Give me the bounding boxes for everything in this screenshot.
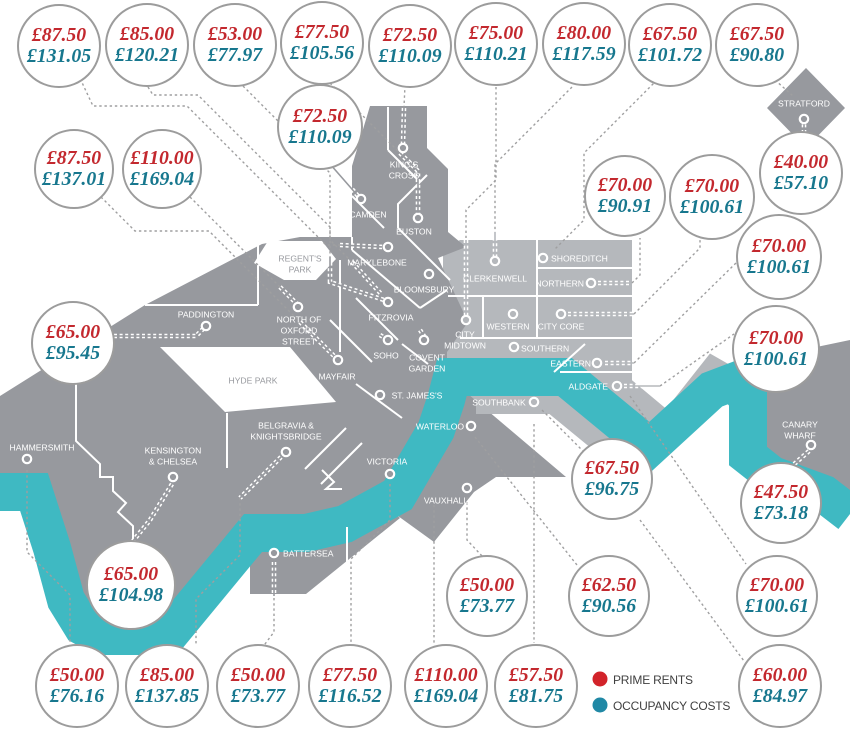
svg-text:£53.00: £53.00: [207, 23, 263, 45]
svg-text:KNIGHTSBRIDGE: KNIGHTSBRIDGE: [250, 432, 321, 442]
svg-text:STRATFORD: STRATFORD: [778, 99, 830, 109]
svg-text:£47.50: £47.50: [753, 481, 809, 503]
svg-text:WESTERN: WESTERN: [487, 322, 530, 332]
svg-text:BLOOMSBURY: BLOOMSBURY: [394, 285, 455, 295]
svg-text:SOHO: SOHO: [373, 351, 399, 361]
svg-text:MAYFAIR: MAYFAIR: [318, 372, 355, 382]
svg-text:CROSS: CROSS: [389, 171, 420, 181]
svg-text:£87.50: £87.50: [46, 147, 102, 169]
svg-text:£100.61: £100.61: [744, 595, 809, 617]
svg-text:£110.09: £110.09: [377, 45, 441, 67]
svg-text:£169.04: £169.04: [129, 168, 194, 190]
svg-text:WATERLOO: WATERLOO: [416, 422, 465, 432]
svg-text:£116.52: £116.52: [317, 685, 381, 707]
svg-text:PRIME RENTS: PRIME RENTS: [613, 673, 693, 687]
svg-text:CITY CORE: CITY CORE: [538, 322, 585, 332]
svg-text:£73.77: £73.77: [230, 685, 287, 707]
svg-text:£85.00: £85.00: [119, 23, 175, 45]
svg-text:£110.00: £110.00: [129, 147, 193, 169]
svg-text:£81.75: £81.75: [508, 685, 564, 707]
svg-text:£110.00: £110.00: [413, 664, 477, 686]
svg-text:CITY: CITY: [455, 330, 475, 340]
svg-text:£60.00: £60.00: [752, 664, 808, 686]
svg-text:PARK: PARK: [289, 265, 312, 275]
svg-text:COVENT: COVENT: [409, 353, 446, 363]
svg-text:£75.00: £75.00: [468, 22, 524, 44]
svg-text:£117.59: £117.59: [551, 43, 615, 65]
svg-text:BELGRAVIA &: BELGRAVIA &: [258, 421, 314, 431]
svg-text:OCCUPANCY COSTS: OCCUPANCY COSTS: [613, 699, 730, 713]
svg-text:OXFORD: OXFORD: [281, 326, 318, 336]
svg-text:£90.91: £90.91: [597, 195, 652, 217]
svg-text:£96.75: £96.75: [584, 478, 640, 500]
svg-text:KING'S: KING'S: [390, 160, 419, 170]
svg-text:£77.50: £77.50: [294, 21, 350, 43]
svg-text:£110.09: £110.09: [287, 126, 351, 148]
svg-text:CAMDEN: CAMDEN: [349, 210, 386, 220]
svg-text:CANARY: CANARY: [782, 420, 818, 430]
svg-text:£50.00: £50.00: [49, 664, 105, 686]
svg-text:£87.50: £87.50: [31, 24, 87, 46]
svg-text:FITZROVIA: FITZROVIA: [369, 313, 414, 323]
svg-text:£57.10: £57.10: [773, 172, 829, 194]
svg-text:£90.56: £90.56: [581, 595, 637, 617]
svg-text:£77.50: £77.50: [322, 664, 378, 686]
svg-text:£40.00: £40.00: [773, 151, 829, 173]
svg-text:£70.00: £70.00: [751, 235, 807, 257]
svg-text:£65.00: £65.00: [103, 563, 159, 585]
svg-text:£67.50: £67.50: [729, 23, 785, 45]
svg-text:SOUTHBANK: SOUTHBANK: [472, 398, 526, 408]
svg-text:KENSINGTON: KENSINGTON: [145, 446, 202, 456]
svg-text:NORTHERN: NORTHERN: [535, 279, 584, 289]
svg-text:MIDTOWN: MIDTOWN: [444, 341, 486, 351]
svg-text:£101.72: £101.72: [637, 44, 702, 66]
svg-text:VICTORIA: VICTORIA: [367, 457, 408, 467]
svg-text:£57.50: £57.50: [508, 664, 564, 686]
svg-text:ST. JAMES'S: ST. JAMES'S: [392, 391, 443, 401]
svg-text:SHOREDITCH: SHOREDITCH: [551, 254, 608, 264]
svg-text:& CHELSEA: & CHELSEA: [149, 457, 198, 467]
svg-text:EUSTON: EUSTON: [396, 227, 432, 237]
svg-text:£120.21: £120.21: [114, 44, 179, 66]
svg-text:£50.00: £50.00: [459, 574, 515, 596]
svg-text:£70.00: £70.00: [748, 327, 804, 349]
svg-text:£70.00: £70.00: [684, 175, 740, 197]
svg-text:£72.50: £72.50: [292, 105, 348, 127]
svg-text:ALDGATE: ALDGATE: [569, 382, 609, 392]
svg-text:£73.77: £73.77: [459, 595, 516, 617]
svg-text:£137.85: £137.85: [134, 685, 199, 707]
svg-text:£70.00: £70.00: [749, 574, 805, 596]
svg-text:£72.50: £72.50: [382, 24, 438, 46]
svg-text:£70.00: £70.00: [597, 174, 653, 196]
svg-text:REGENT'S: REGENT'S: [278, 254, 321, 264]
svg-text:WHARF: WHARF: [784, 431, 816, 441]
svg-text:£104.98: £104.98: [98, 584, 163, 606]
svg-text:£131.05: £131.05: [26, 45, 91, 67]
svg-text:MARYLEBONE: MARYLEBONE: [347, 258, 407, 268]
svg-text:£84.97: £84.97: [752, 685, 809, 707]
svg-text:£95.45: £95.45: [45, 342, 101, 364]
svg-text:£100.61: £100.61: [743, 348, 808, 370]
svg-text:£85.00: £85.00: [139, 664, 195, 686]
svg-text:£73.18: £73.18: [753, 502, 809, 524]
svg-text:VAUXHALL: VAUXHALL: [424, 496, 468, 506]
svg-text:EASTERN: EASTERN: [550, 359, 591, 369]
svg-text:£169.04: £169.04: [413, 685, 478, 707]
svg-text:£105.56: £105.56: [289, 42, 354, 64]
svg-text:STREET: STREET: [282, 337, 317, 347]
svg-text:£67.50: £67.50: [642, 23, 698, 45]
svg-text:£137.01: £137.01: [41, 168, 106, 190]
svg-text:HAMMERSMITH: HAMMERSMITH: [10, 443, 75, 453]
svg-text:£76.16: £76.16: [49, 685, 105, 707]
svg-text:£90.80: £90.80: [729, 44, 785, 66]
svg-text:GARDEN: GARDEN: [409, 364, 446, 374]
svg-text:£77.97: £77.97: [207, 44, 264, 66]
svg-text:£50.00: £50.00: [230, 664, 286, 686]
svg-text:£65.00: £65.00: [45, 321, 101, 343]
svg-text:£100.61: £100.61: [746, 256, 811, 278]
svg-text:£110.21: £110.21: [463, 43, 527, 65]
svg-text:£100.61: £100.61: [679, 196, 744, 218]
svg-text:HYDE PARK: HYDE PARK: [228, 376, 277, 386]
svg-text:£62.50: £62.50: [581, 574, 637, 596]
svg-text:PADDINGTON: PADDINGTON: [178, 310, 235, 320]
svg-text:NORTH OF: NORTH OF: [277, 315, 322, 325]
svg-text:CLERKENWELL: CLERKENWELL: [463, 274, 527, 284]
svg-text:SOUTHERN: SOUTHERN: [521, 344, 569, 354]
svg-text:£67.50: £67.50: [584, 457, 640, 479]
svg-text:£80.00: £80.00: [556, 22, 612, 44]
svg-text:BATTERSEA: BATTERSEA: [283, 549, 334, 559]
